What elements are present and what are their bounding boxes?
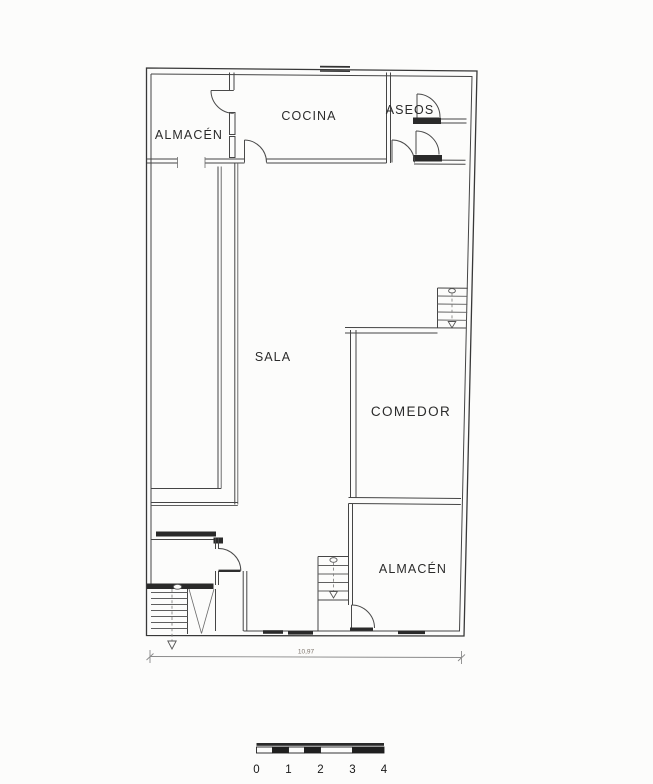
staircase-middle [318,557,349,632]
dimension-line: 10,97 [147,649,466,665]
scale-bar: 0 1 2 3 4 [253,743,388,776]
door-arc-aseos-lobby [392,140,415,163]
scanned-floor-plan-page: ALMACÉN COCINA ASEOS SALA COMEDOR ALMACÉ… [0,0,653,784]
window-symbol [320,67,350,72]
door-arc-almacen-top [211,91,234,114]
wall-vestibule [243,571,247,631]
scale-label-0: 0 [253,764,259,776]
wall-comedor-almacen [349,498,462,505]
bar-counter [151,163,238,506]
exterior-walls [147,67,478,636]
wall-comedor-top [345,328,467,334]
wall-almacen-cocina [230,73,236,158]
wall-cocina-aseos [387,73,391,164]
floor-plan-drawing: ALMACÉN COCINA ASEOS SALA COMEDOR ALMACÉ… [0,0,653,784]
wall-almacen-bottom-left [349,504,353,606]
room-label-comedor: COMEDOR [371,404,451,419]
staircase-bottom-left [147,584,216,650]
scale-label-4: 4 [381,764,388,776]
wall-cocina-south [234,159,387,163]
room-label-almacen-bottom: ALMACÉN [379,561,447,576]
room-label-almacen-top: ALMACÉN [155,127,223,142]
scale-label-2: 2 [317,764,323,776]
room-label-aseos: ASEOS [386,103,435,117]
door-arc-aseo-lower [416,131,439,155]
room-label-sala: SALA [255,350,291,364]
door-arc-almacen-bottom [352,605,375,629]
wall-almacen-top-south [147,157,234,168]
aseos-walls [413,118,467,165]
door-arc-cocina [245,140,267,163]
scale-label-1: 1 [285,764,291,776]
scale-label-3: 3 [349,764,355,776]
wall-comedor-left [351,330,357,498]
room-label-cocina: COCINA [281,109,336,123]
dimension-label: 10,97 [298,649,315,656]
staircase-top-right [438,288,468,328]
door-arc-small-room [219,549,241,571]
small-room-walls [151,532,223,586]
